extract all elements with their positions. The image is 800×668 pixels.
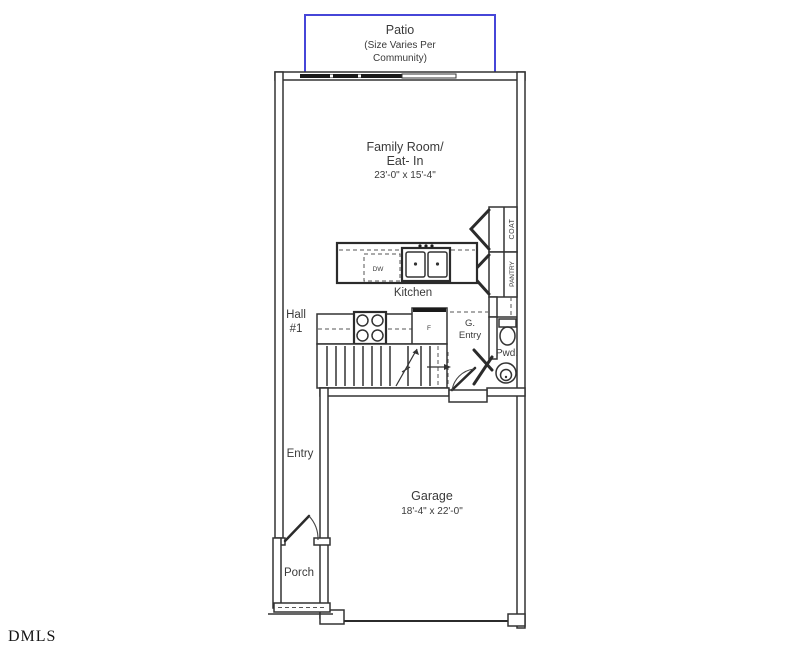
refrigerator-top-bar [413,308,446,312]
faucet-icon [418,244,421,247]
pwd-sink-drain [505,376,507,378]
front-door-arc [309,516,318,540]
floor-plan: Patio (Size Varies Per Community) Family… [0,0,800,668]
door-mullion [358,75,361,78]
chase-wall [489,297,497,317]
powder-room: Pwd. [474,317,518,384]
staircase [317,344,447,388]
dmls-watermark: DMLS [8,628,56,645]
plumbing-chase [489,297,511,317]
patio-note-line1: (Size Varies Per [364,40,436,51]
pantry-label: PANTRY [509,260,516,286]
wall-left [275,72,283,542]
wall-right [517,72,525,628]
patio-label: Patio [386,23,415,37]
pwd-label: Pwd. [496,348,518,359]
garage-label: Garage [411,489,453,503]
porch-label: Porch [284,567,314,579]
garage-top-wall-right [487,388,525,396]
patio-note-line2: Community) [373,53,427,64]
coat-label: COAT [509,218,516,239]
sink-drain-left [414,262,417,265]
rear-sliding-door [300,74,456,78]
hall-label-line1: Hall [286,309,306,321]
g-entry-label-line1: G. [465,318,475,329]
door-mullion [330,75,333,78]
faucet-icon [424,244,427,247]
garage-step [449,390,487,402]
family-room: Family Room/ Eat- In 23'-0" x 15'-4" [366,140,444,181]
garage-dimensions: 18'-4" x 22'-0" [401,506,463,517]
garage-left-wall [320,388,328,618]
refrigerator-label: F [427,325,431,332]
patio: Patio (Size Varies Per Community) [305,15,495,75]
rear-window [402,74,456,78]
toilet-tank [499,319,516,327]
front-door-leaf [285,516,309,541]
sink-unit [402,248,450,281]
kitchen-label: Kitchen [394,287,432,299]
porch-left-wall [273,538,281,608]
family-room-label-line2: Eat- In [387,154,424,168]
faucet-icon [430,244,433,247]
dishwasher-label: DW [373,266,385,273]
garage-entry-door-leaf [452,368,475,390]
hall-label-line2: #1 [290,323,303,335]
front-wall-right [314,538,330,545]
garage-jog-right [508,614,525,626]
g-entry-label-line2: Entry [459,330,481,341]
sliding-door-band [300,74,402,78]
entry-label: Entry [287,448,314,460]
garage-top-wall-left [320,388,449,396]
kitchen-island: DW Kitchen [337,243,477,299]
sink-drain-right [436,262,439,265]
pwd-sink-basin [501,370,512,381]
family-room-dimensions: 23'-0" x 15'-4" [374,170,436,181]
kitchen-counter: F [317,308,447,344]
garage: Garage 18'-4" x 22'-0" [320,368,525,626]
family-room-label-line1: Family Room/ [366,140,444,154]
toilet-bowl-icon [500,327,515,345]
hall-1: Hall #1 [286,309,306,335]
